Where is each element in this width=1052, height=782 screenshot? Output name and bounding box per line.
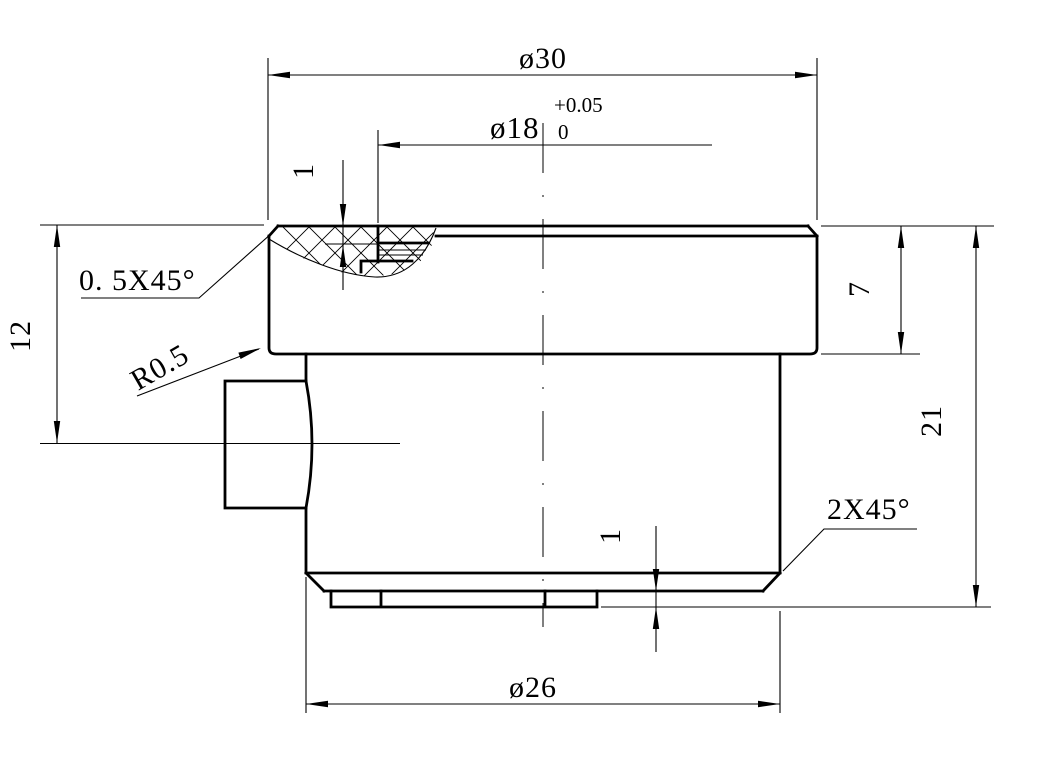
dimension-dia-26: ø26	[306, 577, 780, 713]
label-dia-18-tol-upper: +0.05	[554, 93, 603, 117]
label-7: 7	[843, 281, 876, 297]
label-12: 12	[4, 320, 37, 352]
leader-chamfer-bottom: 2X45°	[783, 493, 917, 571]
label-depth-1-top: 1	[287, 163, 320, 179]
leader-fillet-radius: R0.5	[125, 338, 261, 397]
dimension-7: 7	[821, 226, 994, 354]
part-internal-thin-lines	[325, 244, 426, 255]
label-dia-30: ø30	[519, 42, 567, 75]
label-fillet-radius: R0.5	[125, 338, 195, 397]
dimension-lip-1: 1	[594, 526, 659, 652]
dimension-21: 21	[601, 226, 991, 607]
drawing-sheet: ø30 ø18 +0.05 0 1 12 7 21	[0, 0, 1052, 782]
dimension-dia-18: ø18 +0.05 0	[378, 93, 712, 223]
leader-chamfer-top: 0. 5X45°	[79, 233, 272, 298]
label-chamfer-top: 0. 5X45°	[79, 264, 196, 297]
label-21: 21	[915, 405, 948, 437]
label-chamfer-bottom: 2X45°	[827, 493, 911, 526]
label-lip-1: 1	[594, 528, 627, 544]
section-hatch	[214, 210, 534, 300]
label-dia-18: ø18	[490, 110, 540, 145]
drawing-canvas: ø30 ø18 +0.05 0 1 12 7 21	[0, 0, 1052, 782]
label-dia-26: ø26	[509, 671, 557, 704]
label-dia-18-tol-lower: 0	[558, 120, 569, 144]
part-outline	[225, 226, 817, 607]
